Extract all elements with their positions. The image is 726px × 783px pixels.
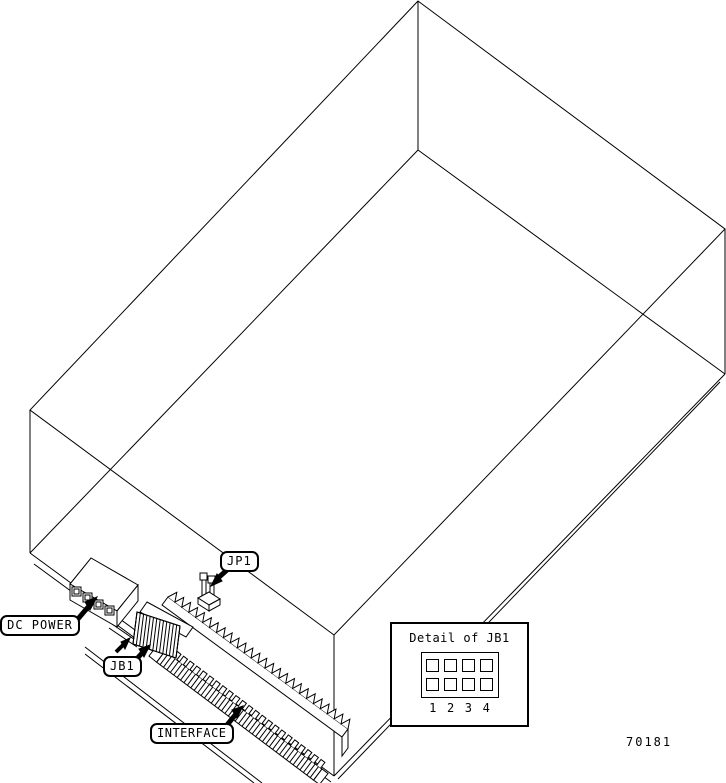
figure-number: 70181 xyxy=(626,735,672,749)
jumper-pad xyxy=(462,659,475,672)
chassis-top-face xyxy=(30,1,725,635)
jp1-pin-cap xyxy=(200,573,207,580)
jumper-grid-row xyxy=(422,678,498,691)
jp1-label: JP1 xyxy=(220,551,259,572)
jumper-grid-row xyxy=(422,659,498,672)
jumper-pad xyxy=(444,678,457,691)
jb1-pin-numbers: 1 2 3 4 xyxy=(419,701,501,715)
jb1-label: JB1 xyxy=(103,656,142,677)
interface-label: INTERFACE xyxy=(150,723,234,744)
dc-pin-outer xyxy=(72,587,81,596)
dc-pin-outer xyxy=(105,606,114,615)
jb1-jumper-grid xyxy=(421,652,499,698)
pin-number: 4 xyxy=(483,701,490,715)
jb1-detail-title: Detail of JB1 xyxy=(392,631,527,645)
jumper-pad xyxy=(462,678,475,691)
pin-header-teeth xyxy=(168,592,350,729)
pin-number: 3 xyxy=(465,701,472,715)
pin-number: 1 xyxy=(429,701,436,715)
dc-pin-outer xyxy=(94,600,103,609)
jumper-pad xyxy=(426,678,439,691)
chassis-bottom-edges xyxy=(30,150,725,776)
dc-power-label: DC POWER xyxy=(0,615,80,636)
drive-isometric-diagram: DC POWER JP1 JB1 INTERFACE Detail of JB1… xyxy=(0,0,726,783)
jb1-detail-box: Detail of JB1 1 2 3 4 xyxy=(390,622,529,727)
jumper-pad xyxy=(444,659,457,672)
jumper-pad xyxy=(480,678,493,691)
jumper-pad xyxy=(480,659,493,672)
jumper-pad xyxy=(426,659,439,672)
pin-number: 2 xyxy=(447,701,454,715)
